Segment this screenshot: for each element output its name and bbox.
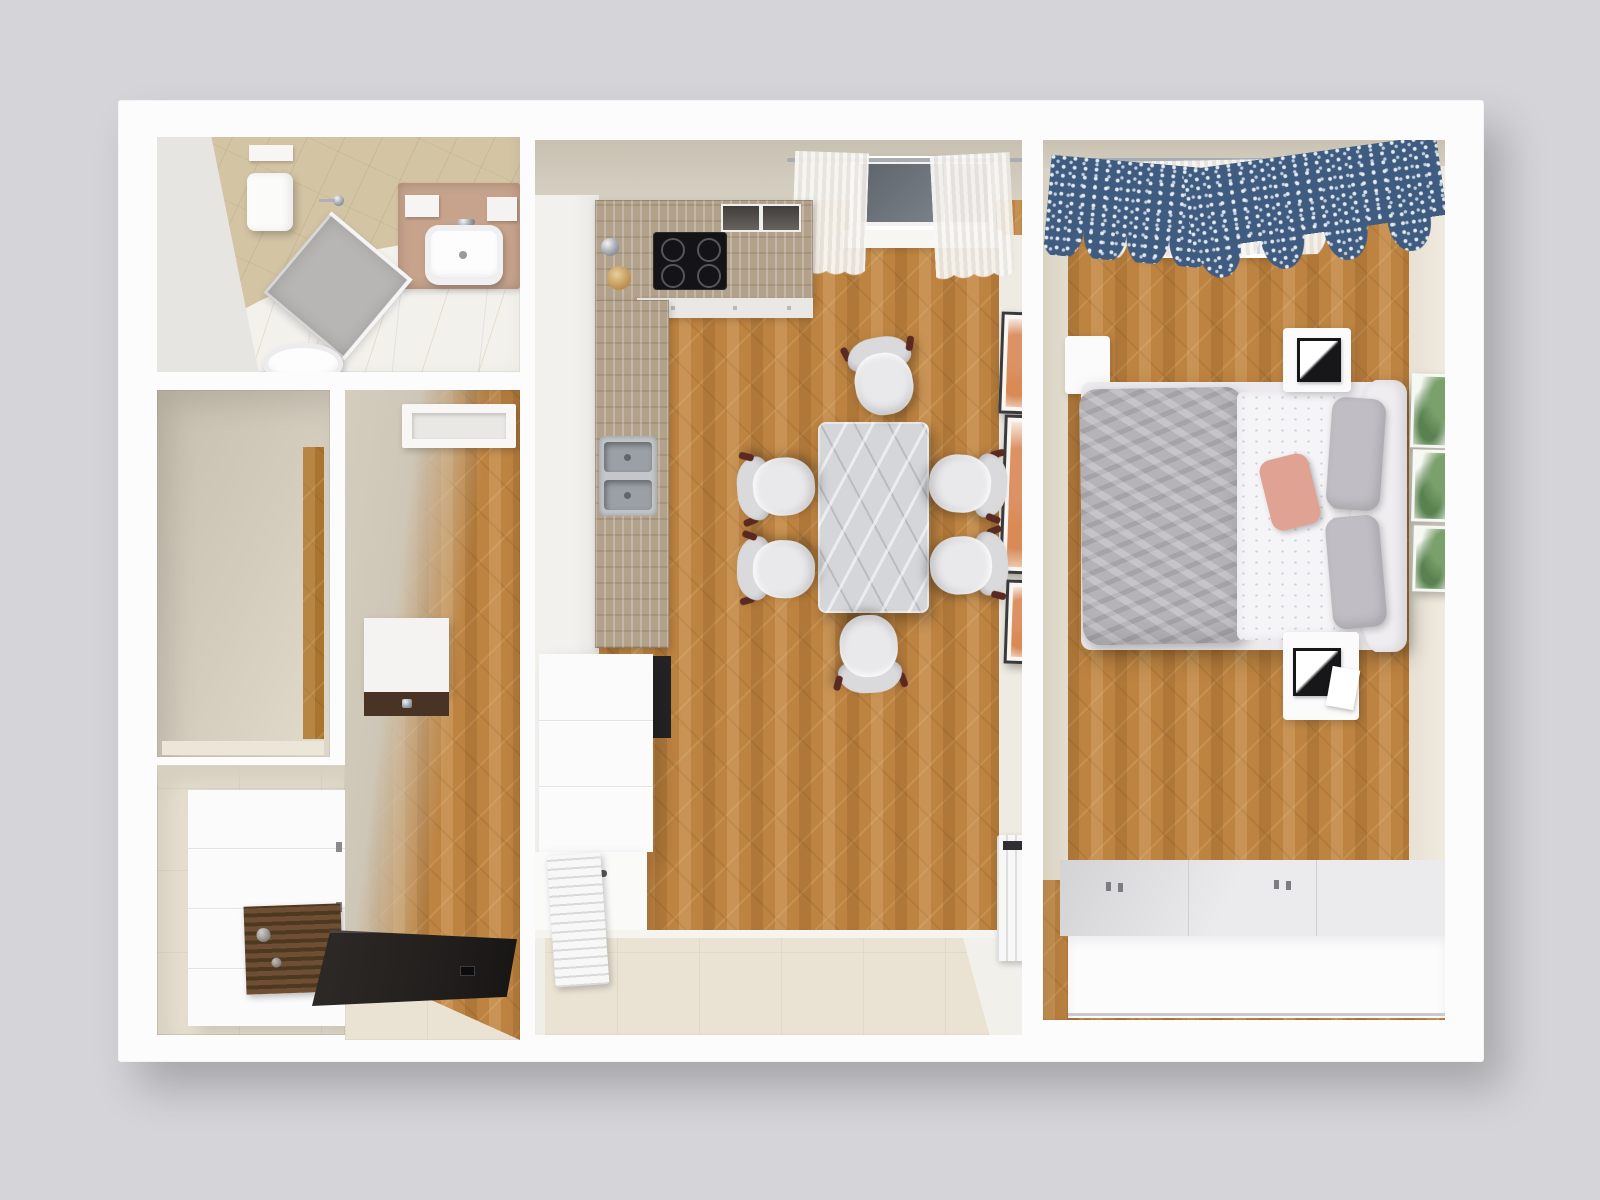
sink-drain xyxy=(624,454,631,461)
door-handle xyxy=(460,966,475,976)
nightstand-bottom xyxy=(1283,632,1359,720)
bed-pillow-gray xyxy=(1324,514,1388,630)
entrance-wall-face xyxy=(157,765,345,789)
dining-chair xyxy=(924,528,1011,602)
double-bed xyxy=(1081,382,1405,650)
dining-chair xyxy=(735,450,822,524)
wardrobe-door-seam xyxy=(1188,860,1189,936)
cabinet-seam xyxy=(539,786,653,787)
chair-seat-cushion xyxy=(751,455,817,517)
cabinet-door-divider xyxy=(759,204,763,232)
shower-glass-panel-side xyxy=(341,277,412,361)
table-lamp-icon xyxy=(1297,338,1341,382)
wardrobe-front-face xyxy=(1068,936,1445,1018)
decor-branch xyxy=(256,928,270,942)
sink-drain xyxy=(624,492,631,499)
floor-plan-scene xyxy=(0,0,1600,1200)
artwork-orange-print xyxy=(1011,587,1022,658)
console-shelf-dark xyxy=(364,692,449,716)
artwork-green-canvas xyxy=(1410,373,1445,448)
wardrobe-handle xyxy=(1274,880,1279,889)
room-kitchen-dining xyxy=(535,140,1022,1035)
dining-table xyxy=(818,422,929,613)
wardrobe-seam xyxy=(188,848,345,849)
bathroom-door-frame xyxy=(402,404,516,448)
kitchen-sheer-curtain-right xyxy=(930,152,1017,284)
fruit-bowl xyxy=(607,266,631,290)
burner xyxy=(661,238,685,262)
artwork-green-print xyxy=(1413,376,1445,445)
water-heater xyxy=(247,173,293,231)
tall-cabinet-unit xyxy=(539,654,653,852)
kitchen-sink xyxy=(599,436,657,516)
soap-shelf xyxy=(405,195,439,217)
cabinet-handle xyxy=(733,306,737,310)
kettle xyxy=(601,238,619,256)
burner xyxy=(697,238,721,262)
closet-floor xyxy=(162,741,324,755)
door-frame-inner xyxy=(412,413,506,439)
cabinet-handle xyxy=(787,306,791,310)
bed-duvet xyxy=(1079,387,1247,646)
cabinet-seam xyxy=(539,720,653,721)
wardrobe-handle xyxy=(1286,881,1291,890)
wardrobe-bottom-gap xyxy=(1068,1013,1445,1016)
console-hook xyxy=(402,699,412,708)
cooktop xyxy=(653,232,727,290)
water-heater-bracket xyxy=(249,145,293,161)
artwork-green-print xyxy=(1415,528,1445,589)
dining-chair xyxy=(842,332,923,425)
artwork-green-print xyxy=(1414,452,1445,519)
front-door xyxy=(312,930,517,1006)
dining-chair xyxy=(736,534,820,605)
dining-chair xyxy=(923,447,1010,521)
room-bathroom xyxy=(157,137,520,372)
room-bedroom xyxy=(1043,140,1445,1020)
artwork-green-canvas xyxy=(1412,525,1445,592)
room-closet xyxy=(157,390,330,757)
wardrobe-handle xyxy=(336,842,342,852)
dining-chair xyxy=(833,609,905,694)
artwork-orange-frame xyxy=(998,311,1022,414)
artwork-orange-print xyxy=(1006,422,1022,568)
oven-column-slot xyxy=(651,656,671,738)
cabinet-handle xyxy=(671,306,675,310)
basin-faucet xyxy=(457,219,475,225)
glass-cabinet-doors xyxy=(721,204,801,232)
burner xyxy=(661,264,685,288)
balcony-left-baseboard xyxy=(535,938,545,1035)
artwork-orange-print xyxy=(1005,319,1022,408)
bed-pillow-gray xyxy=(1325,396,1387,511)
radiator-slot xyxy=(1003,841,1022,850)
wardrobe-door-seam xyxy=(1316,860,1317,936)
shower-arm xyxy=(319,199,335,202)
chair-seat-cushion xyxy=(752,539,816,599)
balcony-tile-floor xyxy=(535,938,1022,1035)
decor-branch xyxy=(271,957,281,967)
book-on-nightstand xyxy=(1326,666,1361,710)
bedroom-wardrobe xyxy=(1060,860,1445,1018)
wardrobe-top-surface xyxy=(1060,860,1445,936)
nightstand-top xyxy=(1283,328,1351,392)
closet-wood-floor-strip xyxy=(303,447,324,739)
balcony-threshold xyxy=(535,930,1022,938)
wardrobe-handle xyxy=(1106,882,1111,891)
wall-console xyxy=(364,618,449,694)
radiator-right xyxy=(997,835,1022,961)
basin-drain xyxy=(459,251,467,259)
radiator-left xyxy=(546,852,609,987)
bedroom-left-wall-face xyxy=(1043,168,1068,880)
burner xyxy=(697,264,721,288)
wardrobe-handle xyxy=(1118,883,1123,892)
artwork-green-canvas xyxy=(1411,449,1445,522)
towel-holder xyxy=(487,197,517,221)
